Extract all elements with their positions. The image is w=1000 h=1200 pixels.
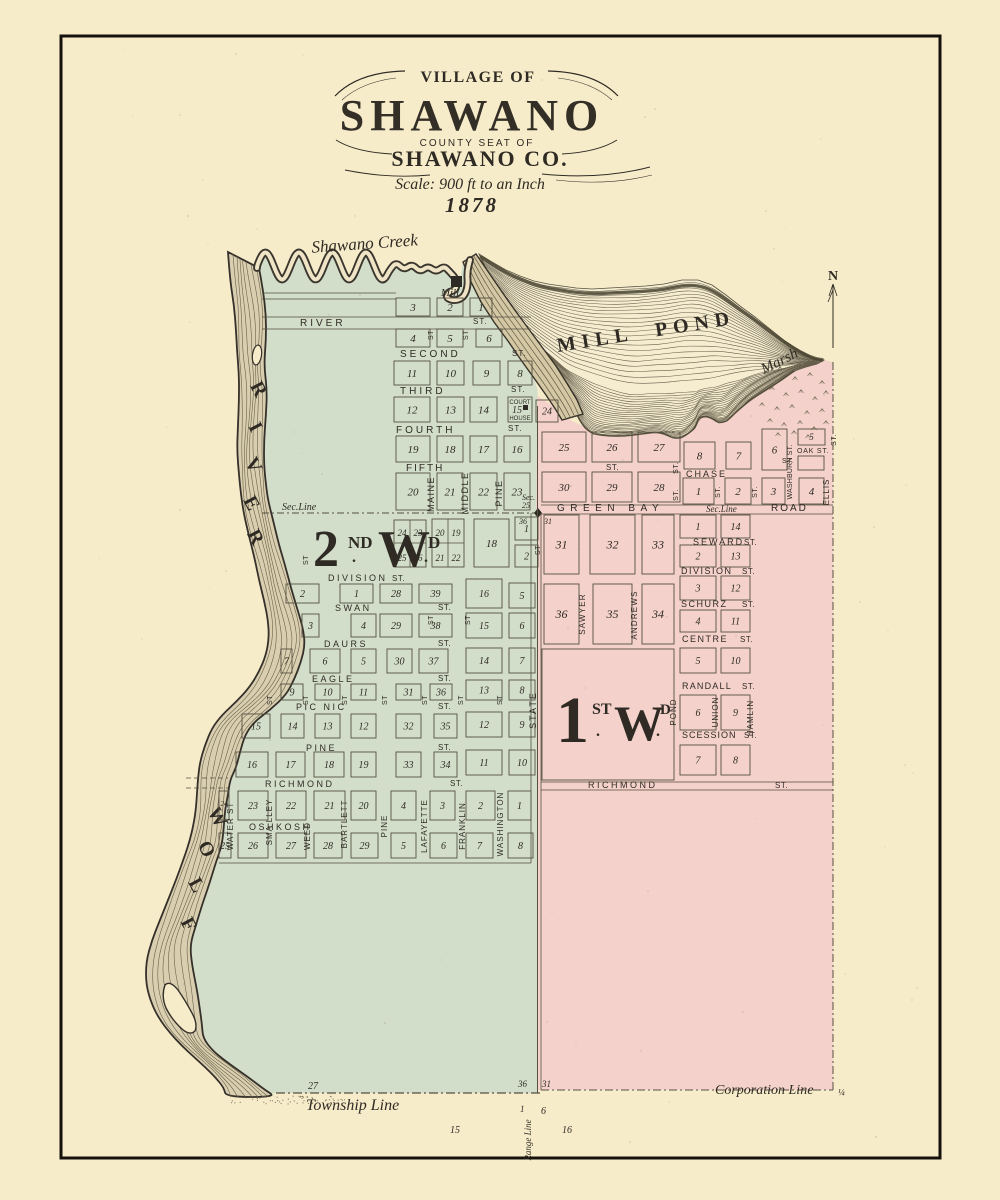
svg-text:HOUSE: HOUSE — [509, 416, 530, 422]
svg-text:9: 9 — [290, 688, 295, 699]
svg-text:WASHINGTON: WASHINGTON — [496, 792, 505, 857]
svg-text:6: 6 — [696, 708, 701, 719]
svg-text:24: 24 — [542, 407, 552, 418]
svg-text:WASHBURN ST.: WASHBURN ST. — [787, 444, 794, 499]
svg-text:13: 13 — [731, 552, 741, 563]
svg-text:SHAWANO CO.: SHAWANO CO. — [391, 146, 568, 171]
svg-text:RICHMOND: RICHMOND — [265, 779, 335, 789]
svg-text:33: 33 — [651, 538, 664, 552]
svg-text:6: 6 — [541, 1106, 546, 1117]
svg-text:ST: ST — [592, 701, 612, 718]
svg-text:ST: ST — [382, 695, 389, 705]
svg-text:34: 34 — [440, 760, 451, 771]
svg-text:13: 13 — [323, 722, 333, 733]
svg-text:8: 8 — [697, 450, 703, 462]
svg-text:6: 6 — [486, 333, 492, 345]
svg-text:ST: ST — [303, 555, 310, 565]
svg-text:35: 35 — [606, 607, 619, 621]
svg-text:ST.: ST. — [473, 317, 488, 326]
svg-text:6: 6 — [323, 657, 328, 668]
svg-text:2: 2 — [300, 589, 305, 600]
svg-text:1: 1 — [517, 801, 522, 812]
svg-text:30: 30 — [558, 482, 571, 494]
svg-text:9: 9 — [484, 368, 490, 380]
svg-text:18: 18 — [486, 538, 498, 550]
svg-text:SECOND: SECOND — [400, 349, 461, 360]
svg-text:.: . — [656, 723, 660, 740]
svg-text:Corporation Line: Corporation Line — [715, 1083, 813, 1098]
svg-text:28: 28 — [323, 841, 333, 852]
svg-text:1: 1 — [696, 486, 702, 498]
svg-text:N: N — [828, 269, 838, 284]
svg-text:4: 4 — [410, 333, 416, 345]
svg-text:12: 12 — [359, 722, 369, 733]
svg-text:25: 25 — [559, 442, 571, 454]
svg-text:FIFTH: FIFTH — [406, 463, 444, 474]
svg-text:.: . — [352, 549, 356, 566]
svg-text:ST.: ST. — [775, 781, 788, 790]
svg-text:ST.: ST. — [606, 463, 619, 472]
svg-text:ST.: ST. — [715, 486, 722, 498]
svg-text:HAMLIN: HAMLIN — [746, 700, 755, 736]
svg-text:32: 32 — [403, 722, 414, 733]
svg-text:15: 15 — [450, 1125, 460, 1136]
svg-text:ST.: ST. — [438, 702, 451, 711]
svg-text:ST.: ST. — [742, 600, 755, 609]
svg-text:21: 21 — [325, 801, 335, 812]
svg-text:1: 1 — [696, 522, 701, 533]
svg-text:28: 28 — [654, 482, 666, 494]
svg-text:1878: 1878 — [445, 193, 499, 217]
svg-text:SAWYER: SAWYER — [578, 593, 587, 635]
svg-text:20: 20 — [408, 486, 420, 498]
svg-text:14: 14 — [478, 404, 490, 416]
svg-text:SCESSION: SCESSION — [682, 730, 737, 740]
svg-text:ST.: ST. — [744, 538, 757, 547]
svg-text:OAK ST.: OAK ST. — [797, 448, 829, 455]
svg-text:RIVER: RIVER — [300, 318, 346, 329]
svg-text:DIVISION: DIVISION — [681, 566, 733, 576]
svg-text:ROAD: ROAD — [771, 503, 808, 514]
svg-text:THIRD: THIRD — [400, 386, 446, 397]
svg-text:22: 22 — [478, 486, 490, 498]
svg-text:36: 36 — [517, 1079, 528, 1089]
svg-text:ST.: ST. — [740, 635, 753, 644]
svg-text:27: 27 — [308, 1081, 319, 1092]
svg-text:13: 13 — [479, 686, 489, 697]
svg-text:5: 5 — [809, 432, 814, 442]
svg-text:10: 10 — [731, 656, 741, 667]
svg-text:11: 11 — [407, 368, 417, 380]
svg-text:25: 25 — [522, 501, 530, 510]
svg-text:DAURS: DAURS — [324, 639, 368, 649]
svg-text:1: 1 — [556, 684, 589, 757]
svg-text:4: 4 — [696, 617, 701, 628]
svg-text:16: 16 — [562, 1125, 572, 1136]
svg-text:28: 28 — [391, 589, 401, 600]
svg-text:12: 12 — [731, 584, 741, 595]
svg-text:17: 17 — [478, 444, 490, 456]
svg-text:1: 1 — [524, 524, 529, 535]
svg-text:8: 8 — [517, 368, 523, 380]
svg-text:GREEN BAY: GREEN BAY — [557, 503, 664, 514]
svg-text:ST: ST — [458, 695, 465, 705]
svg-text:16: 16 — [512, 444, 524, 456]
svg-text:Scale: 900 ft to an Inch: Scale: 900 ft to an Inch — [395, 176, 545, 193]
svg-text:ELLIS: ELLIS — [822, 479, 831, 506]
svg-text:1: 1 — [354, 589, 359, 600]
svg-text:ST: ST — [535, 545, 542, 555]
svg-text:14: 14 — [731, 522, 741, 533]
svg-text:10: 10 — [517, 758, 527, 769]
svg-text:15: 15 — [251, 722, 261, 733]
svg-text:21: 21 — [436, 553, 445, 563]
svg-text:5: 5 — [520, 591, 525, 602]
svg-text:19: 19 — [408, 444, 420, 456]
svg-text:MIDDLE: MIDDLE — [460, 471, 470, 514]
svg-text:34: 34 — [651, 607, 664, 621]
svg-text:13: 13 — [445, 404, 457, 416]
svg-text:5: 5 — [401, 841, 406, 852]
svg-text:35: 35 — [440, 722, 451, 733]
svg-text:2: 2 — [478, 801, 483, 812]
svg-text:36: 36 — [435, 688, 446, 699]
svg-text:2: 2 — [696, 552, 701, 563]
svg-text:33: 33 — [403, 760, 414, 771]
svg-text:3: 3 — [409, 302, 416, 314]
svg-text:19: 19 — [359, 760, 369, 771]
svg-text:10: 10 — [323, 688, 333, 699]
svg-text:9: 9 — [520, 720, 525, 731]
svg-text:D: D — [428, 533, 440, 552]
svg-text:30: 30 — [394, 657, 405, 668]
svg-text:PINE: PINE — [494, 479, 504, 506]
svg-text:36: 36 — [555, 607, 568, 621]
svg-text:11: 11 — [359, 688, 368, 699]
svg-text:ST.: ST. — [742, 567, 755, 576]
svg-text:7: 7 — [736, 450, 742, 462]
svg-text:FOURTH: FOURTH — [396, 425, 455, 436]
svg-text:WEED: WEED — [303, 822, 312, 850]
svg-text:18: 18 — [445, 444, 457, 456]
svg-text:37: 37 — [428, 657, 440, 668]
svg-text:ST.: ST. — [511, 385, 526, 394]
svg-text:39: 39 — [430, 589, 441, 600]
svg-text:5: 5 — [447, 333, 453, 345]
svg-text:23: 23 — [248, 801, 258, 812]
svg-text:RICHMOND: RICHMOND — [588, 780, 658, 790]
svg-text:9: 9 — [733, 708, 738, 719]
svg-text:21: 21 — [445, 486, 456, 498]
svg-text:ANDREWS: ANDREWS — [630, 590, 639, 639]
svg-text:8: 8 — [520, 686, 525, 697]
svg-text:1: 1 — [520, 1104, 525, 1114]
svg-text:6: 6 — [772, 444, 778, 456]
svg-text:ST.: ST. — [450, 779, 463, 788]
svg-text:ST.: ST. — [742, 682, 755, 691]
svg-text:Sec.Line: Sec.Line — [282, 502, 317, 513]
svg-text:WATER ST: WATER ST — [226, 802, 235, 850]
svg-text:3: 3 — [439, 801, 445, 812]
svg-text:ST: ST — [267, 695, 274, 705]
svg-text:4: 4 — [361, 621, 366, 632]
svg-text:FRANKLIN: FRANKLIN — [458, 802, 467, 850]
svg-text:STATE: STATE — [528, 691, 538, 729]
svg-text:RANDALL: RANDALL — [682, 681, 732, 691]
svg-text:ST.: ST. — [438, 639, 451, 648]
svg-text:31: 31 — [541, 1079, 551, 1089]
svg-text:SWAN: SWAN — [335, 603, 372, 613]
svg-text:26: 26 — [607, 442, 619, 454]
svg-text:SCHURZ: SCHURZ — [681, 599, 728, 609]
svg-text:12: 12 — [407, 404, 419, 416]
svg-text:VILLAGE OF: VILLAGE OF — [420, 69, 535, 86]
svg-text:11: 11 — [479, 758, 488, 769]
svg-text:ST.: ST. — [508, 424, 523, 433]
svg-text:3: 3 — [307, 621, 313, 632]
svg-text:LAFAYETTE: LAFAYETTE — [420, 799, 429, 853]
svg-text:SHAWANO: SHAWANO — [340, 91, 605, 140]
svg-text:ST.: ST. — [831, 434, 838, 446]
svg-text:ST.: ST. — [673, 489, 680, 501]
svg-text:SMA LLEY: SMA LLEY — [265, 799, 274, 846]
svg-text:4: 4 — [809, 486, 815, 498]
svg-text:3: 3 — [770, 486, 777, 498]
svg-text:12: 12 — [479, 720, 489, 731]
svg-text:Township Line: Township Line — [306, 1097, 399, 1114]
svg-text:CHASE: CHASE — [686, 469, 727, 479]
svg-text:ST: ST — [497, 695, 504, 705]
svg-text:Mill: Mill — [440, 287, 459, 299]
svg-text:2: 2 — [447, 302, 453, 314]
svg-text:2: 2 — [313, 521, 339, 578]
svg-text:11: 11 — [731, 617, 740, 628]
svg-text:ST.: ST. — [673, 462, 680, 474]
svg-text:5: 5 — [361, 657, 366, 668]
svg-text:ST.: ST. — [512, 349, 527, 358]
svg-text:Range Line: Range Line — [523, 1119, 533, 1161]
svg-text:2: 2 — [735, 486, 741, 498]
svg-text:14: 14 — [479, 656, 489, 667]
svg-text:27: 27 — [654, 442, 666, 454]
svg-text:5: 5 — [696, 656, 701, 667]
svg-text:ST: ST — [428, 615, 435, 625]
svg-text:6: 6 — [520, 621, 525, 632]
svg-text:W: W — [378, 521, 430, 578]
svg-text:22: 22 — [286, 801, 296, 812]
svg-text:MAINE: MAINE — [426, 476, 436, 512]
svg-text:POND: POND — [669, 698, 678, 725]
svg-text:8: 8 — [518, 841, 523, 852]
svg-text:15: 15 — [479, 621, 489, 632]
svg-text:19: 19 — [452, 528, 462, 538]
svg-text:16: 16 — [247, 760, 257, 771]
svg-text:1: 1 — [478, 302, 484, 314]
svg-text:27: 27 — [286, 841, 297, 852]
svg-text:22: 22 — [452, 553, 462, 563]
svg-text:29: 29 — [607, 482, 619, 494]
svg-text:ST: ST — [342, 695, 349, 705]
svg-text:31: 31 — [555, 538, 568, 552]
svg-text:31: 31 — [403, 688, 414, 699]
svg-text:Sec.Line: Sec.Line — [706, 504, 737, 514]
svg-text:4: 4 — [401, 801, 406, 812]
svg-text:.: . — [424, 549, 428, 566]
svg-text:PINE: PINE — [380, 815, 389, 838]
svg-text:ST: ST — [422, 695, 429, 705]
svg-text:3: 3 — [695, 584, 701, 595]
svg-text:SEWARD: SEWARD — [693, 537, 744, 547]
svg-text:ST: ST — [463, 330, 470, 340]
svg-text:EAGLE: EAGLE — [312, 674, 355, 684]
svg-text:ST: ST — [428, 330, 435, 340]
svg-text:16: 16 — [479, 589, 489, 600]
svg-text:ST.: ST. — [438, 743, 451, 752]
svg-text:18: 18 — [324, 760, 334, 771]
svg-text:UNION: UNION — [711, 697, 720, 728]
svg-text:14: 14 — [288, 722, 298, 733]
svg-text:20: 20 — [359, 801, 369, 812]
svg-text:.: . — [596, 723, 600, 740]
svg-text:10: 10 — [445, 368, 457, 380]
svg-text:29: 29 — [360, 841, 370, 852]
svg-text:ST: ST — [303, 695, 310, 705]
svg-text:32: 32 — [606, 538, 619, 552]
svg-text:¼: ¼ — [838, 1087, 845, 1097]
svg-text:ST: ST — [465, 615, 472, 625]
svg-text:29: 29 — [391, 621, 401, 632]
svg-text:2: 2 — [524, 552, 529, 563]
svg-text:ST.: ST. — [438, 674, 451, 683]
svg-text:ST.: ST. — [752, 486, 759, 498]
svg-text:6: 6 — [441, 841, 446, 852]
svg-text:PINE: PINE — [306, 743, 337, 753]
svg-text:8: 8 — [733, 756, 738, 767]
svg-text:BARTLETT: BARTLETT — [340, 800, 349, 849]
svg-text:ST.: ST. — [438, 603, 451, 612]
svg-text:26: 26 — [248, 841, 258, 852]
svg-text:CENTRE: CENTRE — [682, 634, 728, 644]
svg-text:17: 17 — [286, 760, 297, 771]
svg-text:15: 15 — [512, 405, 522, 416]
